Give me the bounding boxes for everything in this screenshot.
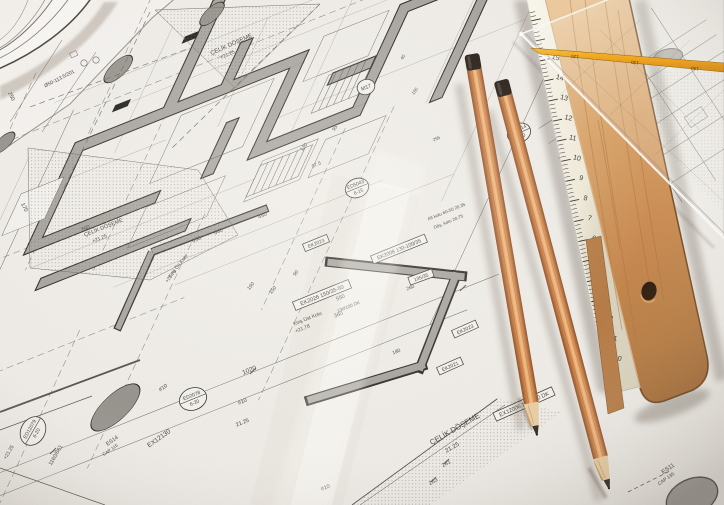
photo-blueprint-scene: EK2026 150/35-50EX12006 130/100 DKEK2008… [0,0,724,505]
vignette [0,0,724,505]
scene-canvas: EK2026 150/35-50EX12006 130/100 DKEK2008… [0,0,724,505]
